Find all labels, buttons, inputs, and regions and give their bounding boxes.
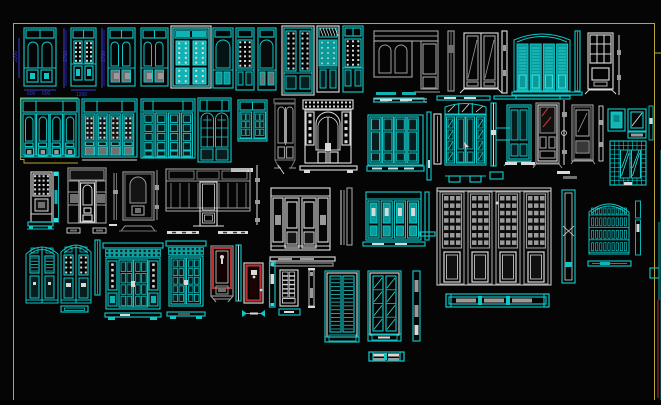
svg-text:1200: 1200 bbox=[76, 92, 87, 98]
svg-text:600: 600 bbox=[27, 91, 36, 97]
svg-text:2700: 2700 bbox=[63, 51, 69, 62]
svg-text:2200: 2200 bbox=[13, 51, 19, 62]
svg-text:2700: 2700 bbox=[101, 51, 107, 62]
svg-text:600: 600 bbox=[42, 91, 51, 97]
